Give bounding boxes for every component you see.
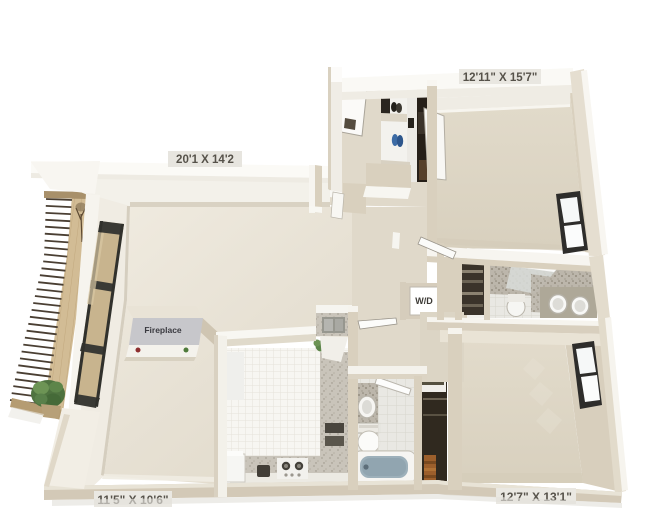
svg-text:W/D: W/D — [415, 296, 433, 306]
svg-text:20'1 X 14'2: 20'1 X 14'2 — [176, 154, 234, 166]
svg-text:12'11" X 15'7": 12'11" X 15'7" — [463, 72, 538, 84]
svg-text:Fireplace: Fireplace — [144, 325, 182, 335]
